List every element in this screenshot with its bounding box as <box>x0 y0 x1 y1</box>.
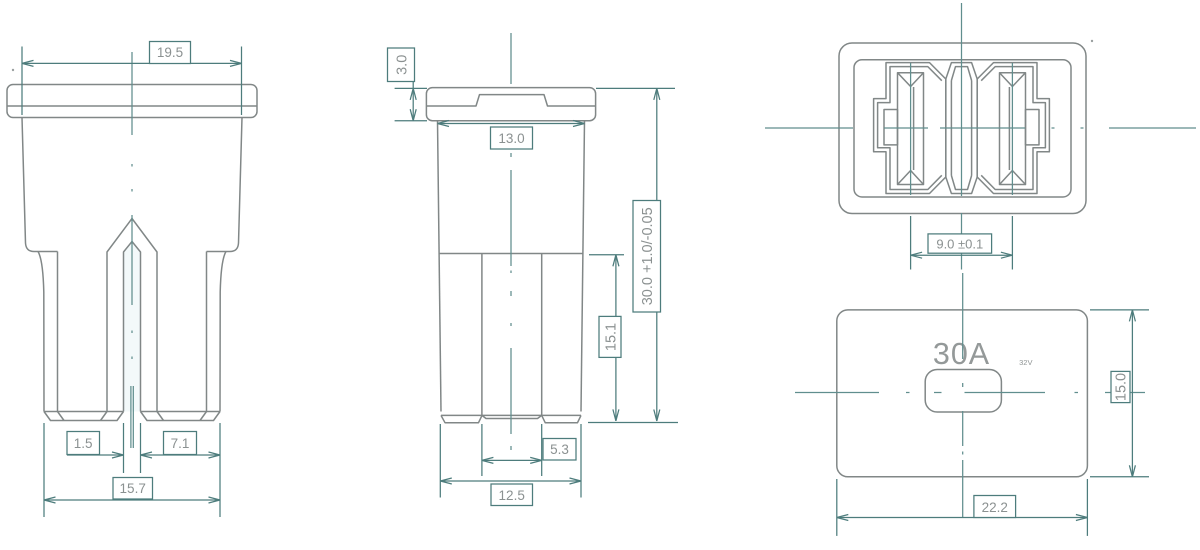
svg-text:7.1: 7.1 <box>171 436 190 451</box>
svg-text:30.0 +1.0/-0.05: 30.0 +1.0/-0.05 <box>640 207 656 305</box>
svg-text:32V: 32V <box>1019 358 1032 367</box>
svg-text:15.7: 15.7 <box>120 481 146 496</box>
svg-text:12.5: 12.5 <box>499 488 525 503</box>
svg-text:13.0: 13.0 <box>498 131 524 146</box>
svg-text:5.3: 5.3 <box>550 442 569 457</box>
svg-text:15.1: 15.1 <box>603 323 619 351</box>
svg-text:22.2: 22.2 <box>982 500 1008 515</box>
svg-text:3.0: 3.0 <box>394 55 410 75</box>
svg-text:30A: 30A <box>933 337 990 371</box>
svg-text:9.0 ±0.1: 9.0 ±0.1 <box>936 236 983 251</box>
svg-text:19.5: 19.5 <box>157 45 183 60</box>
svg-text:15.0: 15.0 <box>1114 373 1130 401</box>
svg-text:1.5: 1.5 <box>74 436 93 451</box>
